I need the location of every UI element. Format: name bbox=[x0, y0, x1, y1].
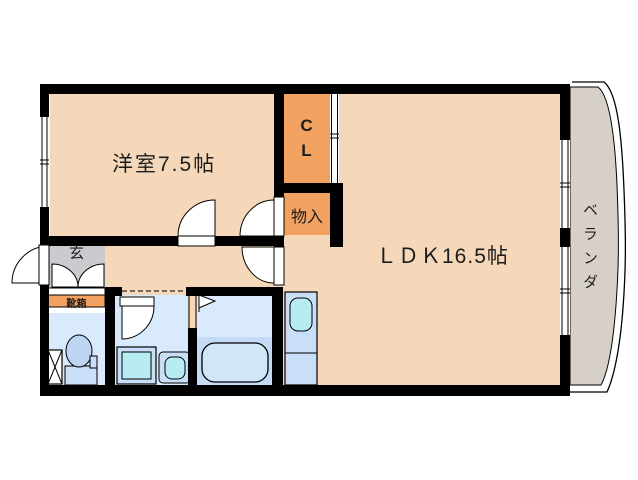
ldk-label: ＬＤＫ16.5帖 bbox=[376, 240, 509, 270]
kitchen-sink bbox=[290, 298, 312, 331]
storage-label: 物入 bbox=[284, 203, 330, 227]
wall-right-2 bbox=[560, 228, 570, 247]
wall-bath-right bbox=[272, 287, 283, 385]
window-ldk-lower bbox=[560, 247, 570, 335]
wall-right-1 bbox=[560, 84, 570, 140]
wall-closet-left bbox=[274, 94, 284, 197]
wall-bottom bbox=[40, 385, 570, 396]
floor-plan-drawing bbox=[0, 0, 638, 480]
shoe-box-label: 靴箱 bbox=[48, 295, 105, 310]
wall-top bbox=[40, 84, 570, 94]
window-west bbox=[40, 117, 49, 207]
wall-right-3 bbox=[560, 335, 570, 396]
wall-bath-left bbox=[188, 328, 197, 385]
wall-hall-bottom-1 bbox=[105, 287, 122, 296]
laundry-pan bbox=[48, 350, 62, 384]
wall-room-bottom-2 bbox=[215, 236, 274, 246]
entrance-door bbox=[12, 245, 49, 285]
closet-sliding-door bbox=[330, 94, 339, 183]
wash-basin bbox=[159, 352, 190, 383]
entrance-step bbox=[48, 288, 105, 295]
wall-toilet-right bbox=[105, 295, 115, 385]
floor-plan: 洋室7.5帖 ＬＤＫ16.5帖 CL 物入 玄 靴箱 ベランダ bbox=[0, 0, 638, 480]
wall-room-bottom-1 bbox=[40, 236, 178, 246]
wall-storage-right bbox=[330, 183, 343, 247]
western-room-label: 洋室7.5帖 bbox=[112, 148, 216, 178]
closet-label: CL bbox=[296, 116, 316, 166]
balcony-label: ベランダ bbox=[579, 202, 600, 298]
wall-corner-hall bbox=[274, 235, 284, 247]
wall-hall-bottom-2 bbox=[186, 287, 283, 296]
kitchen-counter bbox=[285, 292, 317, 385]
entrance-label: 玄 bbox=[69, 242, 84, 263]
window-ldk-upper bbox=[560, 140, 570, 228]
washing-machine bbox=[117, 347, 156, 384]
bathtub bbox=[202, 343, 268, 382]
wall-left-1 bbox=[40, 84, 49, 117]
